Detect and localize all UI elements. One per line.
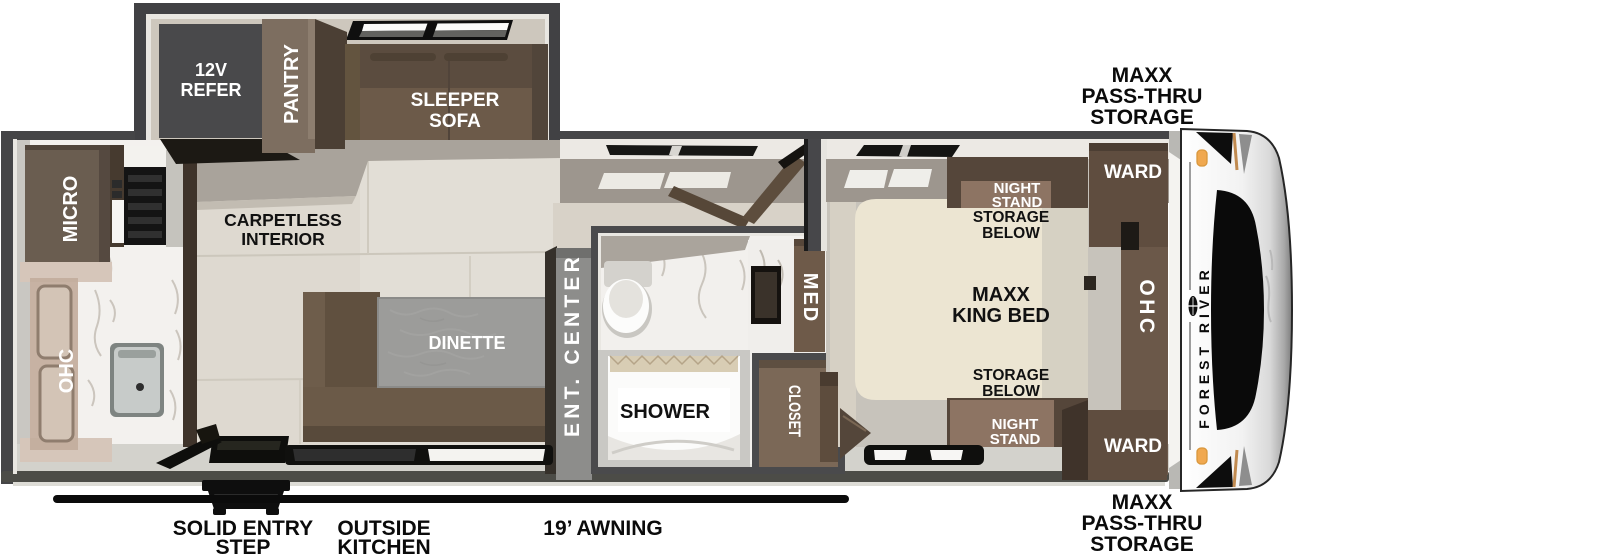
svg-text:12V: 12V — [195, 60, 227, 80]
svg-text:STORAGE: STORAGE — [973, 367, 1049, 384]
svg-text:KING BED: KING BED — [952, 305, 1050, 327]
svg-text:BELOW: BELOW — [982, 383, 1040, 400]
svg-text:INTERIOR: INTERIOR — [241, 229, 325, 249]
svg-text:MAXX: MAXX — [972, 284, 1030, 306]
svg-text:REFER: REFER — [180, 80, 241, 100]
svg-text:CARPETLESS: CARPETLESS — [224, 210, 342, 230]
svg-text:SHOWER: SHOWER — [620, 401, 711, 423]
svg-text:19’ AWNING: 19’ AWNING — [543, 517, 662, 540]
svg-text:PASS-THRU: PASS-THRU — [1082, 512, 1203, 535]
svg-text:STAND: STAND — [990, 431, 1041, 448]
svg-text:DINETTE: DINETTE — [428, 333, 505, 353]
svg-text:MICRO: MICRO — [60, 176, 82, 243]
svg-text:WARD: WARD — [1104, 162, 1162, 183]
svg-text:FOREST RIVER: FOREST RIVER — [1196, 265, 1212, 428]
svg-text:KITCHEN: KITCHEN — [337, 536, 430, 555]
svg-text:SOFA: SOFA — [429, 111, 481, 132]
svg-text:MAXX: MAXX — [1112, 491, 1173, 514]
svg-text:BELOW: BELOW — [982, 225, 1040, 242]
svg-text:PASS-THRU: PASS-THRU — [1082, 85, 1203, 108]
svg-text:OHC: OHC — [1135, 279, 1158, 336]
svg-text:STORAGE: STORAGE — [1090, 533, 1193, 555]
svg-text:ENT. CENTER: ENT. CENTER — [561, 253, 584, 437]
svg-text:OHC: OHC — [56, 349, 78, 393]
svg-text:STORAGE: STORAGE — [1090, 106, 1193, 129]
svg-text:MED: MED — [799, 273, 821, 323]
svg-text:PANTRY: PANTRY — [281, 43, 303, 124]
svg-text:MAXX: MAXX — [1112, 64, 1173, 87]
svg-text:SLEEPER: SLEEPER — [411, 90, 500, 111]
svg-text:STORAGE: STORAGE — [973, 209, 1049, 226]
svg-text:CLOSET: CLOSET — [785, 385, 804, 437]
svg-text:WARD: WARD — [1104, 436, 1162, 457]
svg-text:STEP: STEP — [216, 536, 271, 555]
